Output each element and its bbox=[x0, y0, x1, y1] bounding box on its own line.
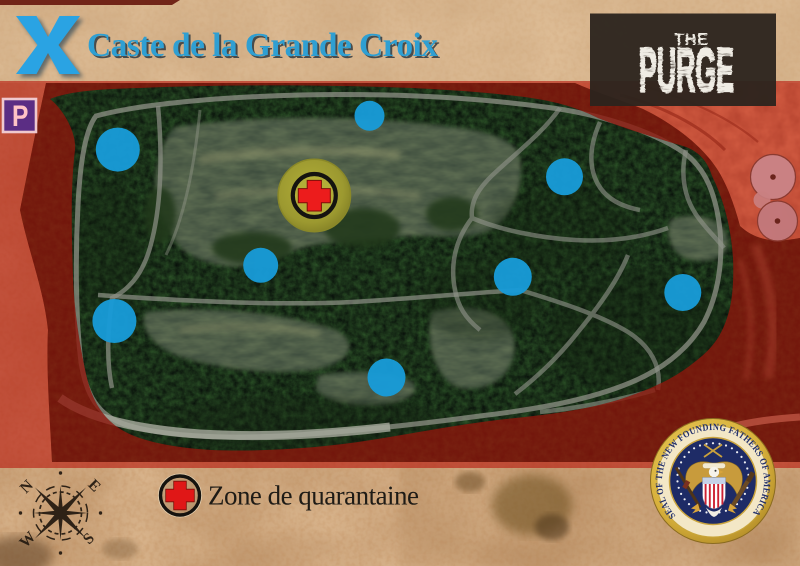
svg-text:P: P bbox=[12, 99, 28, 133]
svg-text:Zone de quarantaine: Zone de quarantaine bbox=[208, 481, 419, 511]
svg-text:PURGE: PURGE bbox=[639, 37, 734, 106]
svg-text:Caste de la Grande Croix: Caste de la Grande Croix bbox=[87, 27, 438, 64]
